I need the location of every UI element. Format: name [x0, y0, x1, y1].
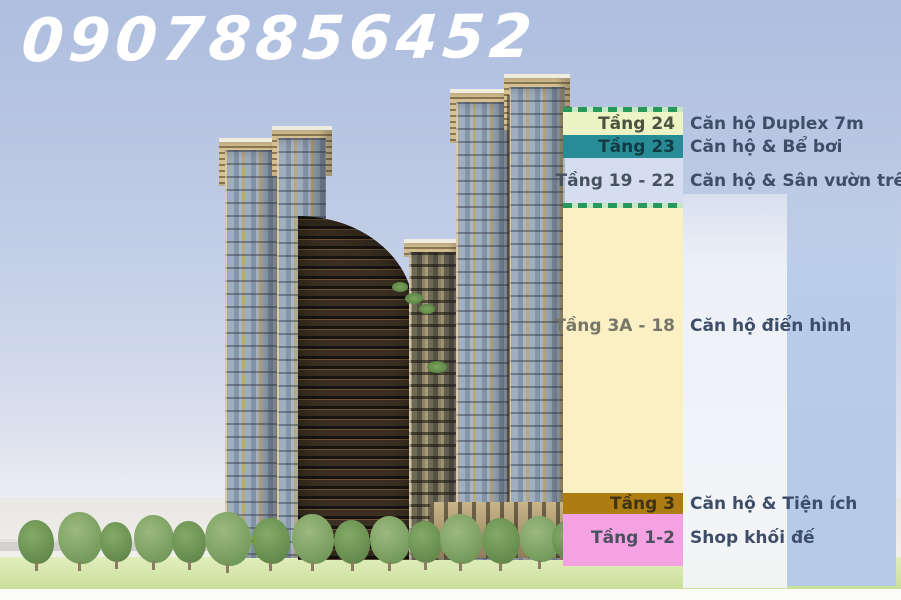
building-floor-diagram: 09078856452: [0, 0, 901, 600]
tree: [440, 514, 482, 564]
floor-label-23: Tầng 23: [563, 135, 675, 158]
tree: [334, 520, 370, 564]
tower-gap-shadow: [507, 95, 510, 558]
tree: [100, 522, 132, 562]
floor-label-3a-18: Tầng 3A - 18: [563, 312, 675, 340]
bottom-white-bar: [0, 589, 901, 600]
roof-garden-tuft: [392, 282, 408, 292]
tree: [292, 514, 334, 564]
floor-label-19-22: Tầng 19 - 22: [563, 158, 675, 203]
roof-garden-tuft: [419, 304, 435, 314]
tree: [172, 521, 206, 563]
floor-label-3: Tầng 3: [563, 493, 675, 514]
roof-garden-tuft: [427, 361, 447, 373]
floor-desc-23: Căn hộ & Bể bơi: [690, 135, 843, 158]
tree: [18, 520, 54, 564]
roof-garden-tuft: [405, 293, 423, 304]
tree: [205, 512, 251, 566]
mid-rise-balcony-block: [298, 216, 414, 560]
tower-left-1: [225, 150, 277, 558]
floor-desc-19-22: Căn hộ & Sân vườn trên cao: [690, 158, 901, 203]
tree: [58, 512, 102, 564]
phone-number-watermark: 09078856452: [19, 2, 539, 76]
floor-label-1-2: Tầng 1-2: [563, 524, 675, 552]
floor-desc-3: Căn hộ & Tiện ích: [690, 493, 857, 514]
floor-label-24: Tầng 24: [563, 112, 675, 135]
tree: [408, 521, 442, 563]
floor-desc-24: Căn hộ Duplex 7m: [690, 112, 864, 135]
tower-right-1: [456, 102, 509, 560]
tree: [482, 518, 520, 564]
tree: [252, 518, 290, 564]
tree: [370, 516, 410, 564]
floor-desc-3a-18: Căn hộ điển hình: [690, 312, 851, 340]
tree: [134, 515, 174, 563]
band-tang-3a-18: [563, 208, 683, 493]
floor-desc-1-2: Shop khối đế: [690, 524, 815, 552]
